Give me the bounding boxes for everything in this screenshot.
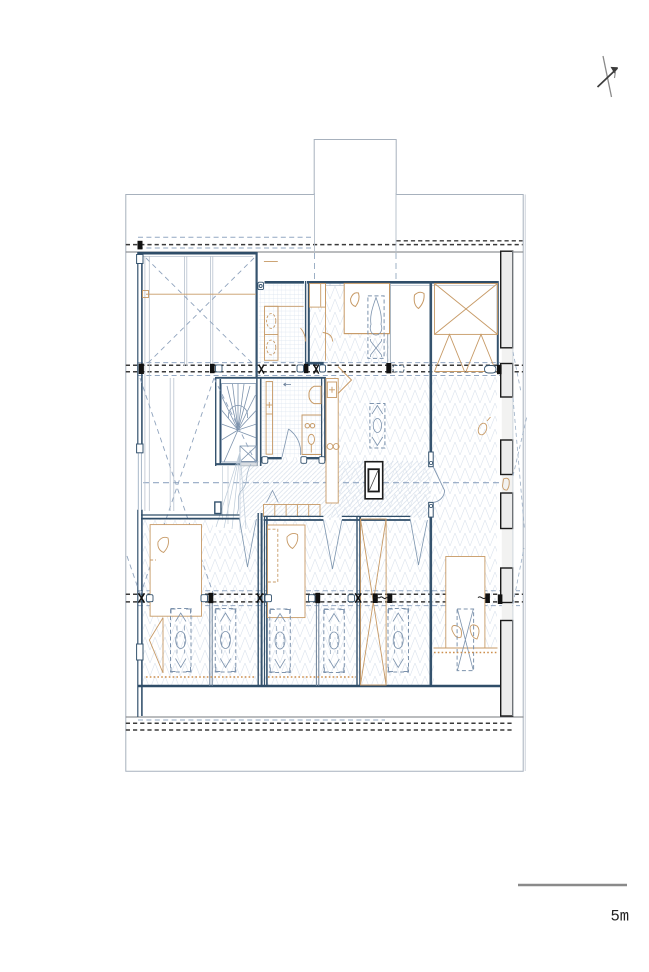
svg-text:5m: 5m bbox=[611, 908, 630, 926]
